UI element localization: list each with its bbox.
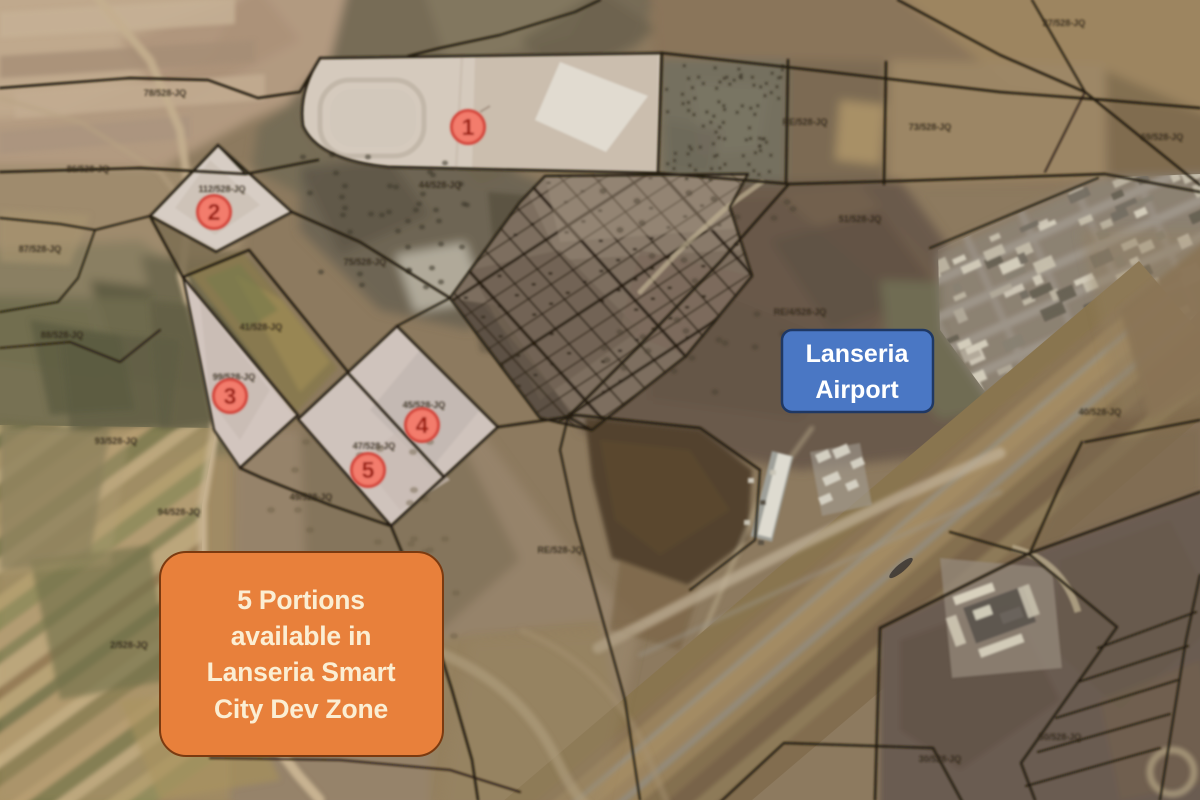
svg-text:4: 4 xyxy=(416,412,429,438)
svg-text:2/528-JQ: 2/528-JQ xyxy=(110,640,148,650)
svg-text:30/528-JQ: 30/528-JQ xyxy=(919,754,962,764)
svg-text:5 Portions: 5 Portions xyxy=(237,585,365,615)
svg-text:51/528-JQ: 51/528-JQ xyxy=(839,214,882,224)
svg-text:27/528-JQ: 27/528-JQ xyxy=(1043,18,1086,28)
svg-text:Lanseria: Lanseria xyxy=(806,340,910,368)
svg-text:112/528-JQ: 112/528-JQ xyxy=(198,184,245,194)
svg-text:87/528-JQ: 87/528-JQ xyxy=(19,244,62,254)
svg-text:50/528-JQ: 50/528-JQ xyxy=(1039,732,1082,742)
svg-text:88/528-JQ: 88/528-JQ xyxy=(41,330,84,340)
svg-text:86/528-JQ: 86/528-JQ xyxy=(67,164,110,174)
svg-text:Airport: Airport xyxy=(815,376,899,404)
svg-text:5: 5 xyxy=(362,457,375,483)
svg-text:94/528-JQ: 94/528-JQ xyxy=(158,507,201,517)
svg-text:44/528-JQ: 44/528-JQ xyxy=(419,180,462,190)
svg-text:RE/528-JQ: RE/528-JQ xyxy=(782,117,827,127)
svg-text:49/528-JQ: 49/528-JQ xyxy=(290,492,333,502)
svg-text:69/528-JQ: 69/528-JQ xyxy=(1141,132,1184,142)
svg-text:75/528-JQ: 75/528-JQ xyxy=(344,257,387,267)
svg-text:RE/4/528-JQ: RE/4/528-JQ xyxy=(774,307,827,317)
svg-text:47/528-JQ: 47/528-JQ xyxy=(353,441,396,451)
svg-text:City Dev Zone: City Dev Zone xyxy=(214,694,388,724)
svg-text:3: 3 xyxy=(224,383,237,409)
svg-text:available in: available in xyxy=(231,621,371,651)
svg-text:40/528-JQ: 40/528-JQ xyxy=(1079,407,1122,417)
svg-text:93/528-JQ: 93/528-JQ xyxy=(95,436,138,446)
svg-text:2: 2 xyxy=(208,199,221,225)
svg-text:73/528-JQ: 73/528-JQ xyxy=(909,122,952,132)
svg-text:78/528-JQ: 78/528-JQ xyxy=(144,88,187,98)
svg-text:Lanseria Smart: Lanseria Smart xyxy=(207,657,396,687)
svg-text:1: 1 xyxy=(462,114,475,140)
svg-text:RE/528-JQ: RE/528-JQ xyxy=(537,545,582,555)
svg-text:41/528-JQ: 41/528-JQ xyxy=(240,322,283,332)
